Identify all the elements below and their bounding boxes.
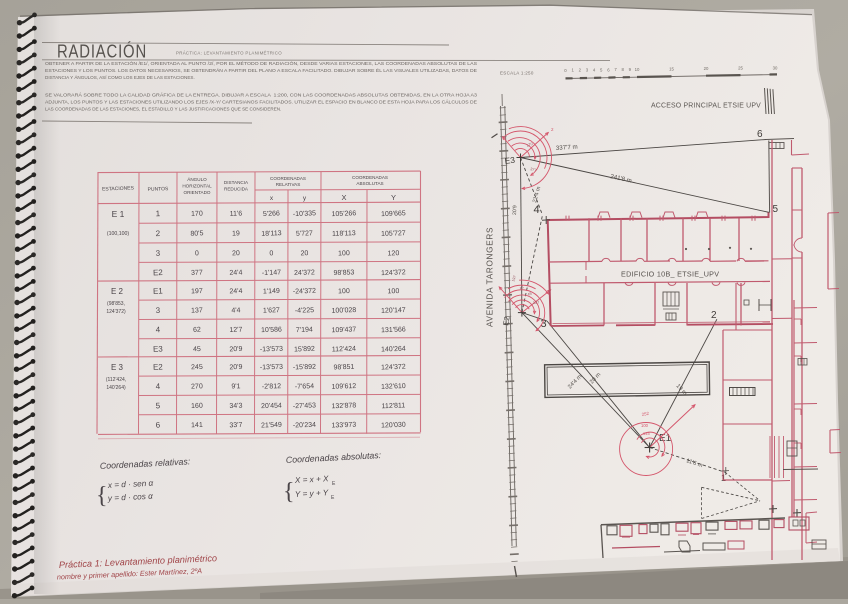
svg-text:-7'654: -7'654 xyxy=(295,383,315,391)
svg-text:100: 100 xyxy=(338,288,350,295)
svg-text:{: { xyxy=(96,483,108,509)
svg-text:1'627: 1'627 xyxy=(263,307,280,315)
svg-text:{: { xyxy=(283,479,295,505)
svg-text:45: 45 xyxy=(193,346,201,353)
svg-text:(100,100): (100,100) xyxy=(107,231,129,237)
svg-text:ESCALA 1:250: ESCALA 1:250 xyxy=(500,71,534,76)
svg-text:137: 137 xyxy=(533,300,540,305)
svg-text:AVENIDA TARONGERS: AVENIDA TARONGERS xyxy=(486,227,495,327)
svg-text:105'266: 105'266 xyxy=(331,210,356,218)
svg-text:-2'812: -2'812 xyxy=(262,383,282,391)
svg-text:Y = y + Y: Y = y + Y xyxy=(295,488,329,499)
svg-text:ESTACIONES Y LOS PUNTOS. LOS D: ESTACIONES Y LOS PUNTOS. LOS DATOS NECES… xyxy=(45,67,477,73)
svg-text:SE VALORARÁ SOBRE TODO LA CALI: SE VALORARÁ SOBRE TODO LA CALIDAD GRÁFIC… xyxy=(45,92,478,98)
svg-text:REDUCIDA: REDUCIDA xyxy=(224,187,249,192)
svg-text:15'892: 15'892 xyxy=(294,346,315,354)
svg-text:-20'234: -20'234 xyxy=(293,422,316,430)
svg-text:ESTACIONES: ESTACIONES xyxy=(102,185,135,192)
svg-text:-13'573: -13'573 xyxy=(260,364,283,372)
svg-text:20: 20 xyxy=(704,66,709,71)
svg-text:PUNTOS: PUNTOS xyxy=(147,186,169,193)
svg-text:-10'335: -10'335 xyxy=(293,210,316,218)
svg-text:20'454: 20'454 xyxy=(261,402,282,410)
svg-text:140'264: 140'264 xyxy=(381,346,406,354)
svg-text:-24'372: -24'372 xyxy=(293,288,316,296)
svg-text:ORIENTADO: ORIENTADO xyxy=(184,190,211,195)
svg-text:20'9: 20'9 xyxy=(512,205,518,215)
svg-text:DISTANCIA Y ÁNGULOS, ASÍ COMO: DISTANCIA Y ÁNGULOS, ASÍ COMO LOS EJES D… xyxy=(45,74,195,80)
svg-text:133'973: 133'973 xyxy=(331,422,356,430)
svg-text:DISTANCIA: DISTANCIA xyxy=(224,180,249,185)
svg-text:19: 19 xyxy=(232,230,240,237)
svg-text:20'9: 20'9 xyxy=(229,346,242,353)
svg-text:24'372: 24'372 xyxy=(294,269,315,277)
svg-text:10: 10 xyxy=(635,67,640,72)
svg-text:Y: Y xyxy=(391,193,396,202)
svg-text:170: 170 xyxy=(191,210,203,217)
svg-text:HORIZONTAL: HORIZONTAL xyxy=(182,184,212,189)
svg-text:5'727: 5'727 xyxy=(296,230,313,238)
svg-text:137: 137 xyxy=(191,307,203,314)
svg-text:E 1: E 1 xyxy=(112,209,125,219)
svg-text:21'549: 21'549 xyxy=(261,422,282,430)
svg-text:E1: E1 xyxy=(153,287,164,296)
svg-text:E 2: E 2 xyxy=(111,287,124,296)
svg-text:E2: E2 xyxy=(153,362,164,371)
svg-text:18'113: 18'113 xyxy=(261,230,282,238)
svg-text:120'030: 120'030 xyxy=(381,422,406,430)
svg-text:6: 6 xyxy=(757,129,763,140)
svg-text:10'586: 10'586 xyxy=(261,326,282,334)
svg-text:131'566: 131'566 xyxy=(381,326,406,334)
svg-text:RELATIVAS: RELATIVAS xyxy=(276,182,301,187)
svg-text:20'9: 20'9 xyxy=(229,364,242,371)
svg-text:E1: E1 xyxy=(659,433,672,444)
svg-text:20: 20 xyxy=(300,250,308,257)
svg-text:100: 100 xyxy=(641,423,649,428)
svg-text:ÁNGULO: ÁNGULO xyxy=(187,176,207,182)
svg-text:112'424: 112'424 xyxy=(332,346,357,354)
svg-text:24'4: 24'4 xyxy=(229,288,242,295)
svg-text:141: 141 xyxy=(191,422,203,429)
svg-text:270: 270 xyxy=(191,383,203,390)
svg-text:E2: E2 xyxy=(153,268,164,277)
svg-text:5'266: 5'266 xyxy=(263,210,280,218)
svg-text:109'665: 109'665 xyxy=(381,210,406,218)
svg-text:OBTENER A PARTIR DE LA ESTACIÓ: OBTENER A PARTIR DE LA ESTACIÓN /E1/, OR… xyxy=(45,60,477,66)
svg-text:24'4: 24'4 xyxy=(229,269,242,276)
svg-text:100: 100 xyxy=(387,288,399,295)
svg-text:12'7: 12'7 xyxy=(229,327,242,334)
svg-text:30: 30 xyxy=(773,65,778,70)
svg-text:COORDENADAS: COORDENADAS xyxy=(352,175,388,180)
svg-text:ACCESO PRINCIPAL ETSIE UPV: ACCESO PRINCIPAL ETSIE UPV xyxy=(651,101,761,110)
svg-text:197: 197 xyxy=(191,288,203,295)
svg-text:112'811: 112'811 xyxy=(382,402,406,410)
svg-text:98'853: 98'853 xyxy=(333,269,354,277)
svg-text:ADJUNTA, LOS PUNTOS Y LAS ESTA: ADJUNTA, LOS PUNTOS Y LAS ESTACIONES UTI… xyxy=(45,99,477,105)
svg-text:5: 5 xyxy=(773,204,779,215)
svg-text:80'5: 80'5 xyxy=(190,230,203,237)
svg-text:1'149: 1'149 xyxy=(263,288,280,296)
svg-text:X = x + X: X = x + X xyxy=(294,474,330,485)
svg-text:100: 100 xyxy=(338,250,350,257)
svg-text:E3: E3 xyxy=(153,344,164,353)
svg-text:377: 377 xyxy=(191,269,203,276)
svg-text:124'372: 124'372 xyxy=(381,269,406,277)
svg-text:120'147: 120'147 xyxy=(381,307,406,315)
svg-text:(112'424,: (112'424, xyxy=(106,377,126,383)
svg-text:100'028: 100'028 xyxy=(331,307,356,315)
svg-text:E2: E2 xyxy=(501,316,511,327)
svg-text:25: 25 xyxy=(738,66,743,71)
svg-text:4: 4 xyxy=(534,204,540,216)
svg-text:0: 0 xyxy=(269,250,273,257)
svg-text:-1'147: -1'147 xyxy=(262,269,282,277)
svg-text:160: 160 xyxy=(191,403,203,410)
svg-text:118'113: 118'113 xyxy=(332,230,356,238)
svg-text:109'437: 109'437 xyxy=(331,326,356,334)
svg-text:COORDENADAS: COORDENADAS xyxy=(270,176,306,181)
svg-text:EDIFICIO 10B_ ETSIE_UPV: EDIFICIO 10B_ ETSIE_UPV xyxy=(621,270,719,279)
svg-text:-27'453: -27'453 xyxy=(293,402,316,410)
svg-text:109'612: 109'612 xyxy=(331,383,356,391)
svg-text:-15'892: -15'892 xyxy=(293,364,316,372)
svg-text:15: 15 xyxy=(669,67,674,72)
svg-text:E 3: E 3 xyxy=(111,363,124,372)
svg-text:20: 20 xyxy=(232,250,240,257)
svg-text:62: 62 xyxy=(193,327,201,334)
svg-text:-4'225: -4'225 xyxy=(295,307,315,315)
svg-text:LAS COORDENADAS DE LAS ESTACIO: LAS COORDENADAS DE LAS ESTACIONES, EL ES… xyxy=(45,107,281,112)
svg-text:245: 245 xyxy=(191,364,203,371)
svg-text:X: X xyxy=(341,193,346,202)
svg-text:PRÁCTICA: LEVANTAMIENTO PLANIM: PRÁCTICA: LEVANTAMIENTO PLANIMÉTRICO xyxy=(176,51,282,56)
svg-text:2: 2 xyxy=(711,310,717,321)
svg-text:11'6: 11'6 xyxy=(230,210,243,217)
svg-text:120: 120 xyxy=(387,250,399,257)
svg-text:124'372: 124'372 xyxy=(381,364,406,372)
svg-text:ABSOLUTAS: ABSOLUTAS xyxy=(356,181,383,186)
svg-text:7'194: 7'194 xyxy=(296,327,313,335)
svg-text:0: 0 xyxy=(195,250,199,257)
svg-text:4'4: 4'4 xyxy=(231,307,240,314)
svg-text:RADIACIÓN: RADIACIÓN xyxy=(57,41,147,62)
svg-text:-13'573: -13'573 xyxy=(260,346,283,354)
svg-text:124'372): 124'372) xyxy=(106,309,126,315)
svg-text:9'1: 9'1 xyxy=(231,383,240,390)
svg-text:98'851: 98'851 xyxy=(333,364,354,372)
svg-text:105'727: 105'727 xyxy=(381,230,406,238)
svg-text:E3: E3 xyxy=(504,155,516,166)
svg-text:33'7: 33'7 xyxy=(229,422,242,429)
svg-text:132'610: 132'610 xyxy=(381,383,406,391)
svg-text:140'264): 140'264) xyxy=(106,385,126,391)
svg-text:(98'853,: (98'853, xyxy=(107,301,125,307)
svg-text:132'878: 132'878 xyxy=(331,402,356,410)
svg-text:345: 345 xyxy=(643,431,650,436)
svg-text:34'3: 34'3 xyxy=(229,403,242,410)
